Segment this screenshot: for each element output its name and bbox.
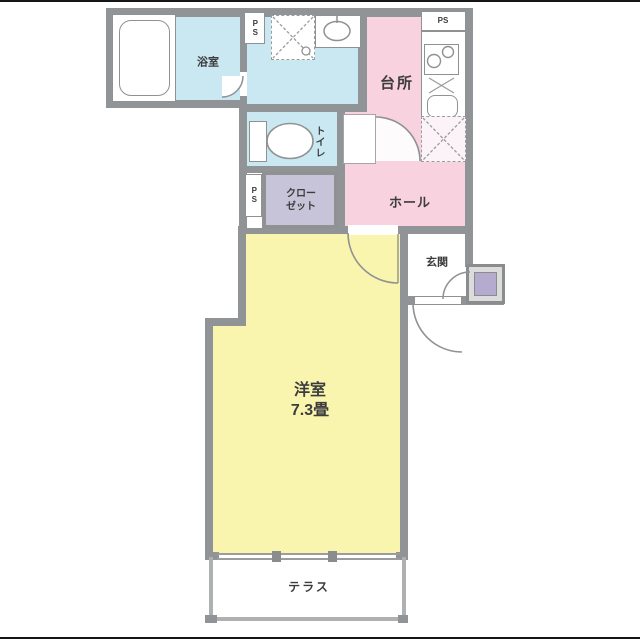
hall-label: ホール — [389, 195, 431, 211]
ps-kitchen-label: PS — [438, 16, 449, 26]
terrace-wall-bottom — [209, 617, 406, 621]
entrance-right-wall — [465, 233, 473, 267]
washing-machine-pan — [271, 15, 315, 60]
meter-box-inner — [474, 272, 497, 296]
bathtub — [119, 20, 170, 96]
western-room-label: 洋室 7.3畳 — [291, 381, 329, 421]
stove — [424, 44, 459, 75]
front-door — [414, 296, 462, 305]
room-door-gap — [348, 225, 398, 235]
ps-top-left-label: PS — [250, 19, 260, 37]
entrance-label: 玄関 — [426, 256, 448, 269]
terrace-window-line-outer — [217, 553, 400, 555]
top-frame-line — [0, 0, 640, 2]
refrigerator-space — [421, 116, 466, 162]
room-right-wall — [400, 226, 408, 560]
western-room-name: 洋室 — [294, 382, 326, 399]
terrace-window-line-inner — [217, 558, 400, 560]
western-room-floor-upper — [246, 234, 400, 328]
terrace-corner-right — [398, 615, 408, 623]
floor-plan: 浴室 台所 トイレ PS PS PS クロー ゼット ホール 玄関 洋室 7.3… — [0, 0, 640, 640]
terrace-wall-right — [402, 557, 406, 621]
terrace-corner-left — [205, 615, 217, 623]
toilet-tank — [249, 121, 267, 162]
window-sash-tick-right — [328, 551, 337, 562]
kitchen-label: 台所 — [380, 75, 414, 93]
kitchen-sink — [427, 95, 458, 118]
outer-wall-right-upper — [465, 8, 473, 234]
window-sash-tick-left — [272, 551, 281, 562]
western-room-floor-lower — [213, 326, 400, 553]
closet-label-line1: クロー — [286, 189, 316, 200]
corridor-door-leaf — [343, 114, 376, 164]
toilet-label: トイレ — [312, 126, 324, 159]
bathroom-label: 浴室 — [197, 56, 219, 69]
room-left-wall-lower — [205, 318, 213, 560]
room-left-wall-upper — [238, 226, 246, 322]
terrace-wall-left — [209, 557, 213, 621]
washbasin-counter — [315, 15, 361, 48]
closet-label-line2: ゼット — [286, 201, 316, 212]
bottom-frame-line — [0, 637, 640, 639]
closet-label: クロー ゼット — [286, 189, 316, 214]
front-door-arc — [413, 303, 462, 352]
terrace-label: テラス — [288, 580, 330, 594]
ps-closet-label: PS — [249, 186, 259, 204]
western-room-size: 7.3畳 — [291, 402, 329, 419]
